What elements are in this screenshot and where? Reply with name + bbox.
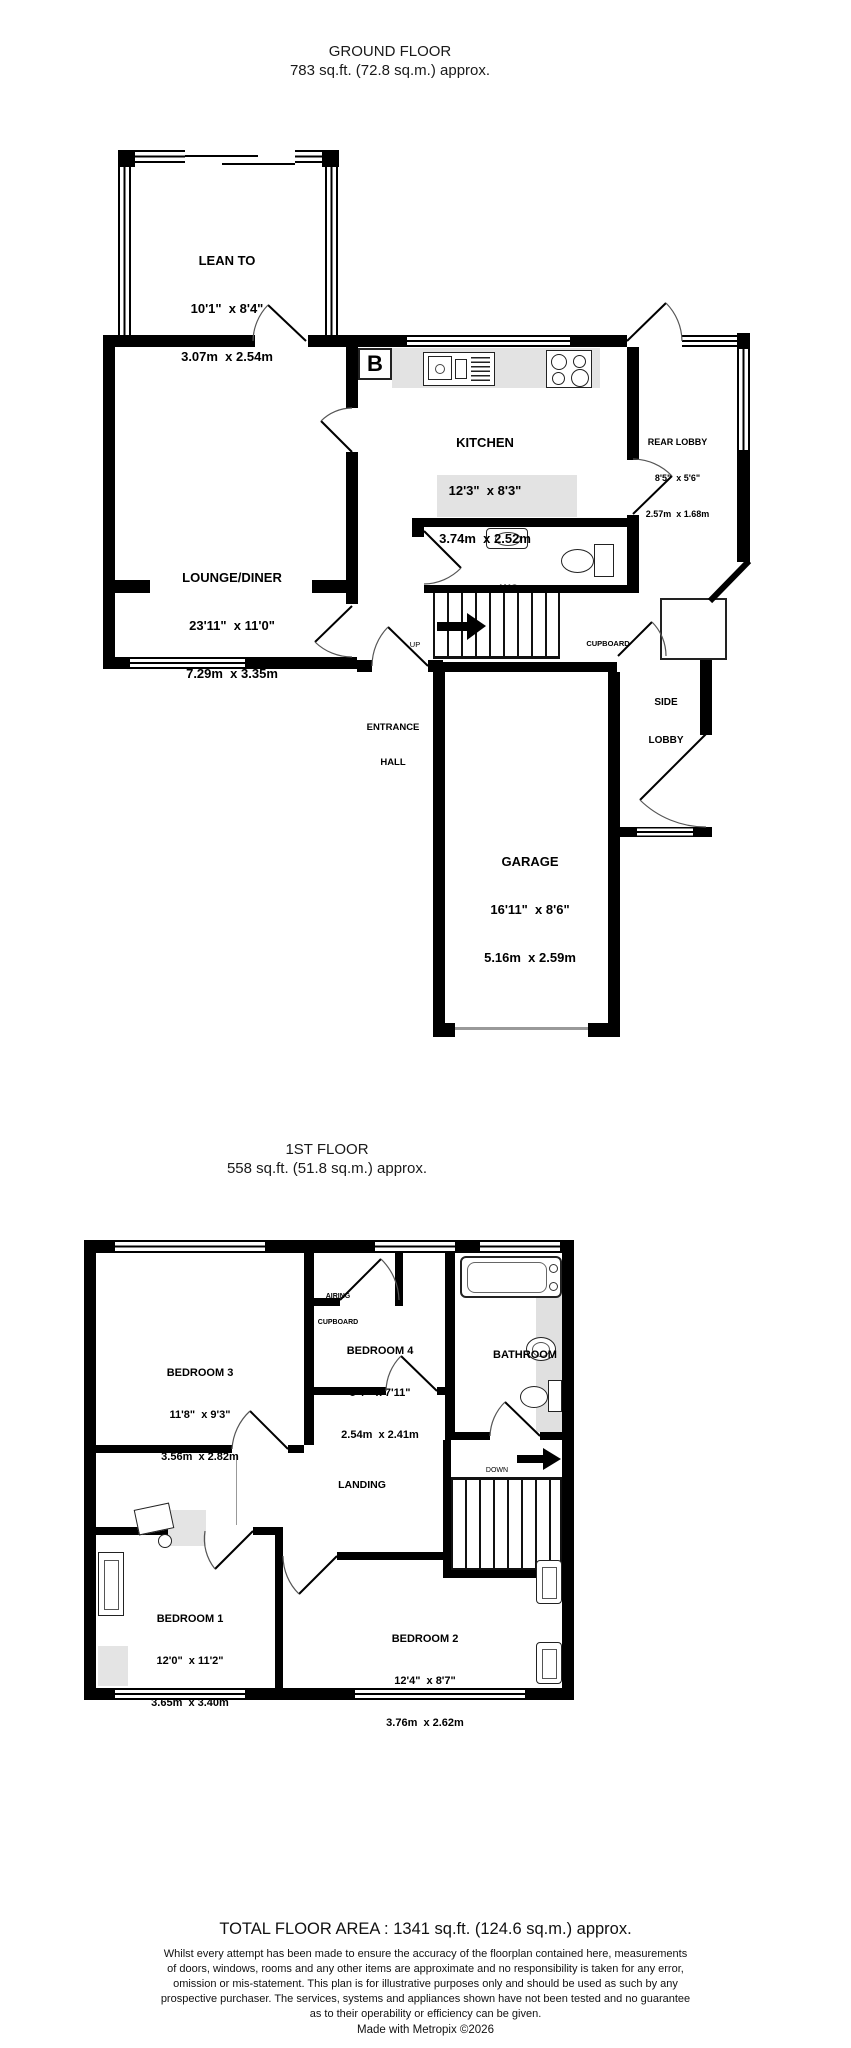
bedroom2-chair [536,1560,562,1604]
door-leaf-rear-lobby-entrance [627,303,666,341]
total-floor-area: TOTAL FLOOR AREA : 1341 sq.ft. (124.6 sq… [0,1920,851,1939]
down-label: DOWN [478,1453,516,1488]
hob-ring [571,369,589,387]
wall-rear-lobby-corner [737,333,750,349]
lean-to-imperial: 10'1" x 8'4" [127,301,327,317]
room-label-kitchen: KITCHEN 12'3" x 8'3" 3.74m x 2.52m [385,403,585,579]
garage-name: GARAGE [430,854,630,870]
chair-inner [542,1567,557,1599]
rear-lobby-metric: 2.57m x 1.68m [615,508,740,520]
disclaimer-line: Whilst every attempt has been made to en… [0,1947,851,1962]
bath-tap [549,1282,558,1291]
bedroom4-metric: 2.54m x 2.41m [305,1428,455,1442]
room-label-side-lobby: SIDE LOBBY [618,672,714,772]
bedroom3-window [115,1240,265,1253]
door-arc-side-lobby-exterior [640,800,706,827]
down-arrow-head [543,1448,561,1470]
side-lobby-window [637,827,693,837]
entrance-hall-line1: ENTRANCE [343,722,443,734]
down-arrow-shaft [517,1455,543,1463]
wall-bathroom-bottom-right [540,1432,574,1440]
lean-to-metric: 3.07m x 2.54m [127,349,327,365]
leanto-sliding-door-line [222,163,295,165]
room-label-wc: WC [479,559,539,619]
bath-tap [549,1264,558,1273]
leanto-window-top-left [135,150,185,163]
ground-floor-title-block: GROUND FLOOR 783 sq.ft. (72.8 sq.m.) app… [175,42,605,80]
first-floor-title: 1ST FLOOR [112,1140,542,1159]
door-arc-kitchen-lounge [321,408,352,421]
first-floor-title-block: 1ST FLOOR 558 sq.ft. (51.8 sq.m.) approx… [112,1140,542,1178]
cupboard-name: CUPBOARD [566,639,650,648]
bedroom1-metric: 3.65m x 3.40m [90,1696,290,1710]
room-label-garage: GARAGE 16'11" x 8'6" 5.16m x 2.59m [430,822,630,998]
bedroom3-metric: 3.56m x 2.82m [100,1450,300,1464]
room-label-bedroom1: BEDROOM 1 12'0" x 11'2" 3.65m x 3.40m [90,1584,290,1738]
bath-inner [467,1262,547,1293]
rear-lobby-imperial: 8'5" x 5'6" [615,472,740,484]
boiler-box: B [358,348,392,380]
sink-drainer-lines [471,357,490,381]
cupboard-box [660,598,727,660]
hob-ring [551,354,567,370]
room-label-lounge: LOUNGE/DINER 23'11" x 11'0" 7.29m x 3.35… [112,538,352,714]
bedroom4-window [375,1240,455,1253]
bedroom4-name: BEDROOM 4 [305,1344,455,1358]
wc-name: WC [479,583,539,595]
stairs-down [451,1480,562,1570]
room-label-cupboard: CUPBOARD [566,621,650,666]
rear-lobby-window-top [682,335,737,347]
wall-front-door-left [357,660,372,672]
metropix-credit: Made with Metropix ©2026 [0,2024,851,2036]
floorplan-canvas: GROUND FLOOR 783 sq.ft. (72.8 sq.m.) app… [0,0,851,2048]
room-label-rear-lobby: REAR LOBBY 8'5" x 5'6" 2.57m x 1.68m [615,412,740,544]
garage-door-line [455,1027,588,1030]
disclaimer: Whilst every attempt has been made to en… [0,1947,851,2022]
desk-stool [158,1534,172,1548]
door-leaf-kitchen-lounge [321,421,352,452]
lounge-metric: 7.29m x 3.35m [112,666,352,682]
sink-unit [423,352,495,386]
leanto-sliding-door-line [185,155,258,157]
bedroom3-imperial: 11'8" x 9'3" [100,1408,300,1422]
ground-floor-subtitle: 783 sq.ft. (72.8 sq.m.) approx. [175,61,605,80]
wall-garage-bottom-left [433,1023,455,1037]
hob [546,350,592,388]
leanto-corner-right [322,150,339,167]
sink-drain [435,364,445,374]
bath [460,1256,562,1298]
disclaimer-line: of doors, windows, rooms and any other i… [0,1962,851,1977]
kitchen-metric: 3.74m x 2.52m [385,531,585,547]
room-label-bedroom4: BEDROOM 4 8'4" x 7'11" 2.54m x 2.41m [305,1316,455,1470]
door-leaf-bedroom2 [299,1556,337,1594]
ff-wall-bottom-3 [525,1688,574,1700]
room-label-bedroom2: BEDROOM 2 12'4" x 8'7" 3.76m x 2.62m [325,1604,525,1758]
disclaimer-line: omission or mis-statement. This plan is … [0,1977,851,1992]
wall-bed2-top [337,1552,451,1560]
bedroom1-imperial: 12'0" x 11'2" [90,1654,290,1668]
kitchen-window [407,335,570,347]
bedroom2-imperial: 12'4" x 8'7" [325,1674,525,1688]
kitchen-imperial: 12'3" x 8'3" [385,483,585,499]
room-label-landing: LANDING [312,1455,412,1515]
door-leaf-bedroom1 [215,1531,253,1569]
up-label: UP [401,622,429,667]
bedroom2-name: BEDROOM 2 [325,1632,525,1646]
wall-kitchen-top-right [570,335,627,347]
disclaimer-line: prospective purchaser. The services, sys… [0,1992,851,2007]
door-arc-front-door [372,627,388,666]
chair-inner [542,1649,557,1679]
garage-imperial: 16'11" x 8'6" [430,902,630,918]
rear-lobby-name: REAR LOBBY [615,436,740,448]
wall-side-lobby-bottom-right [693,827,712,837]
wall-diagonal-rear-to-side-lobby [710,561,749,601]
door-arc-rear-lobby-entrance [666,303,682,341]
ff-wall-top-3 [455,1240,480,1253]
lounge-name: LOUNGE/DINER [112,570,352,586]
bedroom1-name: BEDROOM 1 [90,1612,290,1626]
wall-garage-bottom-right [588,1023,620,1037]
disclaimer-line: as to their operability or efficiency ca… [0,2007,851,2022]
bathroom-window [480,1240,560,1253]
wall-airing-right [395,1253,403,1306]
hob-ring [573,355,586,368]
airing-line1: AIRING [308,1293,368,1302]
room-label-lean-to: LEAN TO 10'1" x 8'4" 3.07m x 2.54m [127,221,327,397]
wall-kitchen-west-upper [346,347,358,408]
lounge-imperial: 23'11" x 11'0" [112,618,352,634]
kitchen-name: KITCHEN [385,435,585,451]
bedroom4-imperial: 8'4" x 7'11" [305,1386,455,1400]
first-floor-subtitle: 558 sq.ft. (51.8 sq.m.) approx. [112,1159,542,1178]
leanto-window-top-right [295,150,322,163]
ff-wall-top-2 [265,1240,375,1253]
bedroom3-name: BEDROOM 3 [100,1366,300,1380]
leanto-corner-left [118,150,135,167]
hob-ring [552,372,565,385]
door-arc-bathroom [490,1402,505,1436]
bedroom2-metric: 3.76m x 2.62m [325,1716,525,1730]
boiler-label: B [367,351,383,376]
room-label-bathroom: BATHROOM [450,1320,600,1390]
garage-metric: 5.16m x 2.59m [430,950,630,966]
side-lobby-line1: SIDE [618,697,714,710]
room-label-entrance-hall: ENTRANCE HALL [343,699,443,791]
landing-name: LANDING [312,1479,412,1491]
sink-half-bowl [455,359,467,379]
ground-floor-title: GROUND FLOOR [175,42,605,61]
bedroom2-chair [536,1642,562,1684]
lean-to-name: LEAN TO [127,253,327,269]
entrance-hall-line2: HALL [343,757,443,769]
ff-wall-right [562,1240,574,1700]
room-label-bedroom3: BEDROOM 3 11'8" x 9'3" 3.56m x 2.82m [100,1338,300,1492]
bathroom-name: BATHROOM [450,1348,600,1362]
side-lobby-line2: LOBBY [618,735,714,748]
toilet-cistern [594,544,614,577]
